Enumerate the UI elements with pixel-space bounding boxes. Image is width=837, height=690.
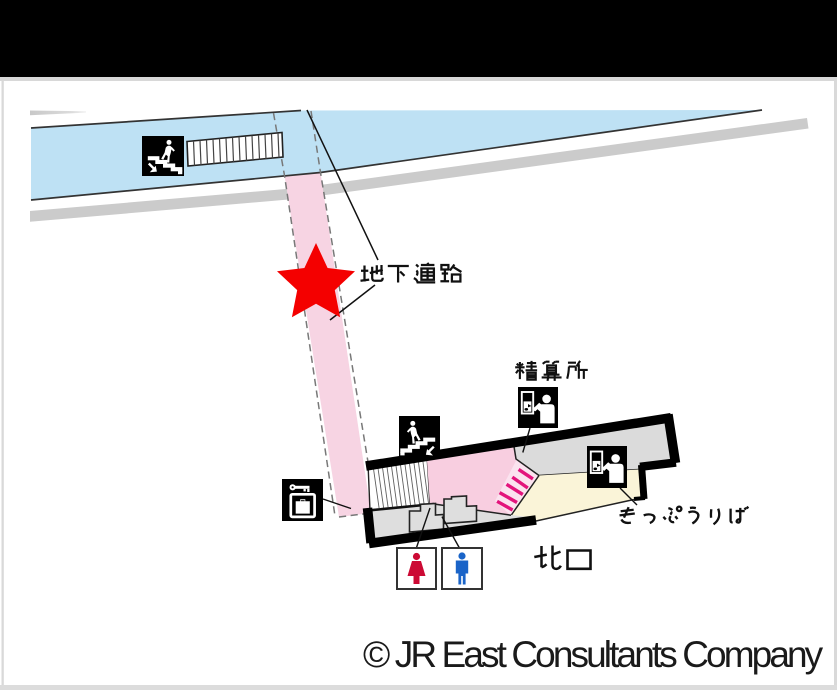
svg-text:© JR East Consultants Company: © JR East Consultants Company <box>363 634 824 675</box>
